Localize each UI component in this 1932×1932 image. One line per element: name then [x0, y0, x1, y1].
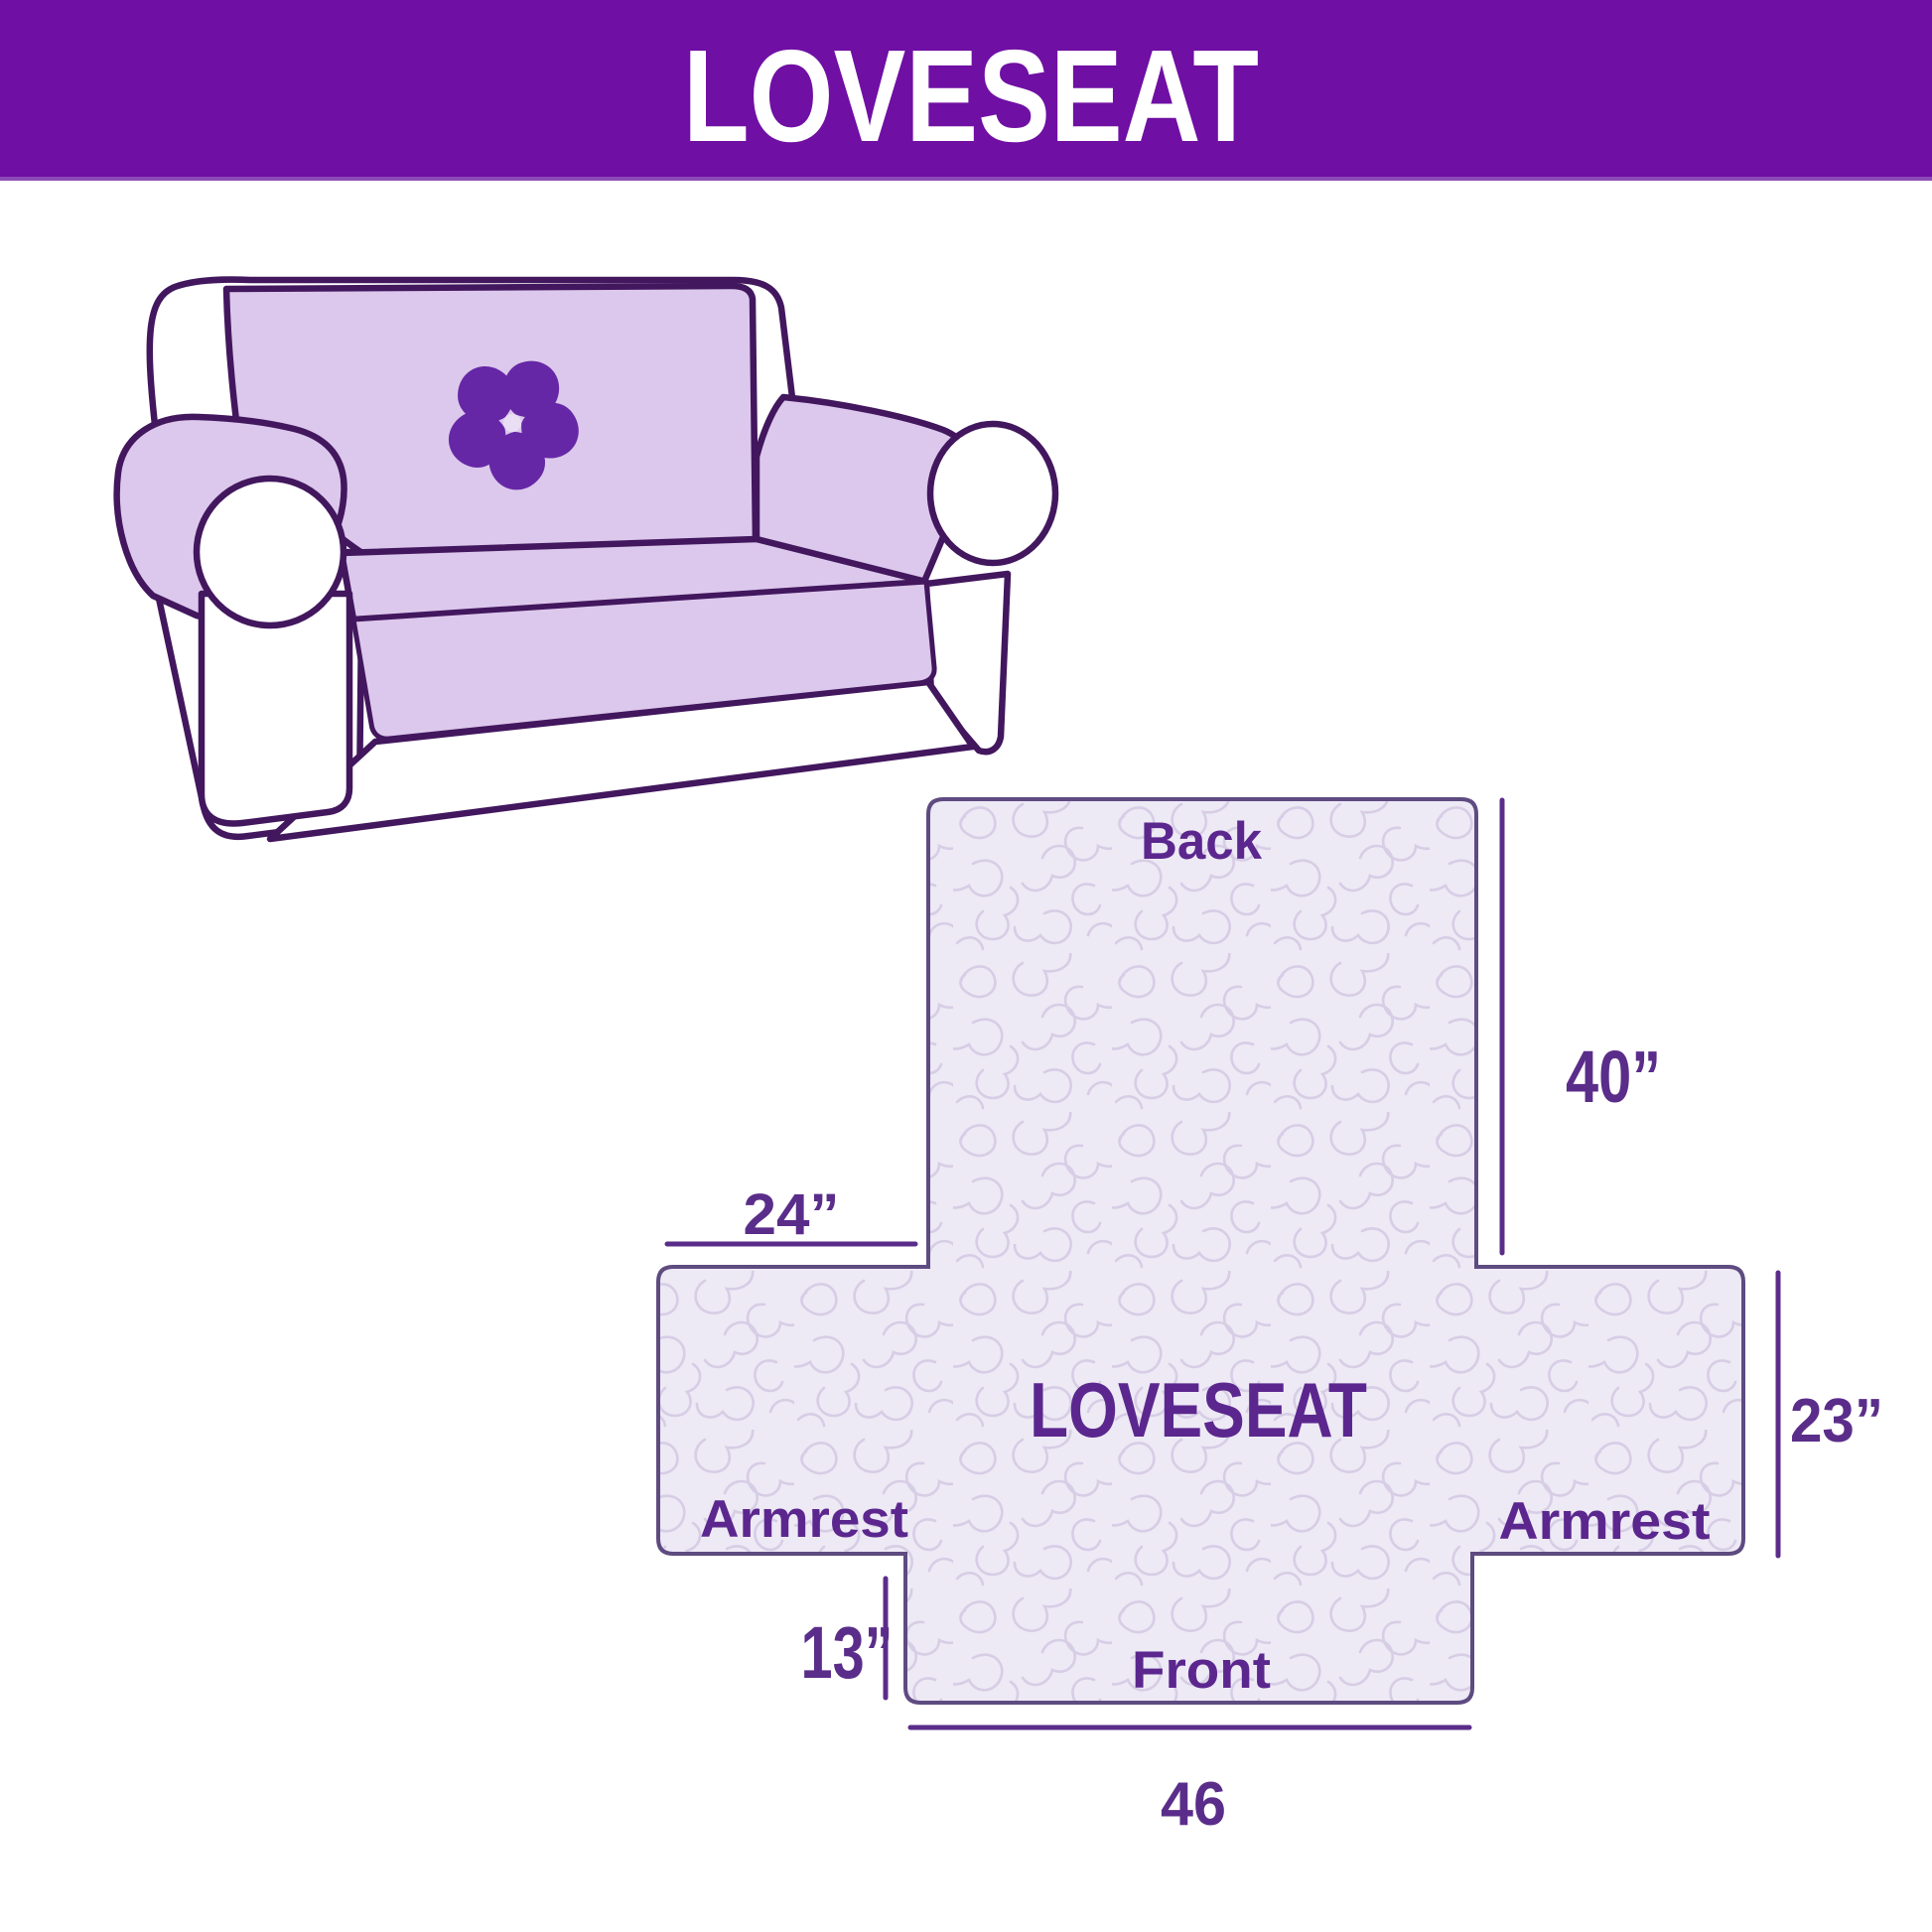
- sofa-right-arm-roll: [930, 424, 1055, 563]
- dim-label-armrest-width: 24”: [744, 1182, 840, 1247]
- label-front: Front: [1132, 1641, 1271, 1700]
- header-title: LOVESEAT: [683, 23, 1259, 169]
- dim-label-front-width: 46: [1161, 1770, 1226, 1839]
- cover-diagram-shape: [658, 799, 1743, 1703]
- sofa-illustration: [117, 280, 1055, 839]
- page: LOVESEAT: [0, 0, 1932, 1932]
- label-back: Back: [1141, 812, 1263, 871]
- dim-label-back-height: 40”: [1566, 1035, 1661, 1118]
- header-band: LOVESEAT: [0, 0, 1932, 181]
- dim-label-front-skirt-height: 13”: [801, 1611, 894, 1694]
- infographic: LOVESEAT: [0, 0, 1932, 1932]
- header-band-edge: [0, 177, 1932, 181]
- label-loveseat: LOVESEAT: [1030, 1366, 1367, 1453]
- label-armrest-left: Armrest: [700, 1490, 908, 1549]
- label-armrest-right: Armrest: [1499, 1492, 1711, 1551]
- dim-label-armrest-height: 23”: [1790, 1387, 1883, 1455]
- sofa-left-arm-roll: [197, 479, 344, 625]
